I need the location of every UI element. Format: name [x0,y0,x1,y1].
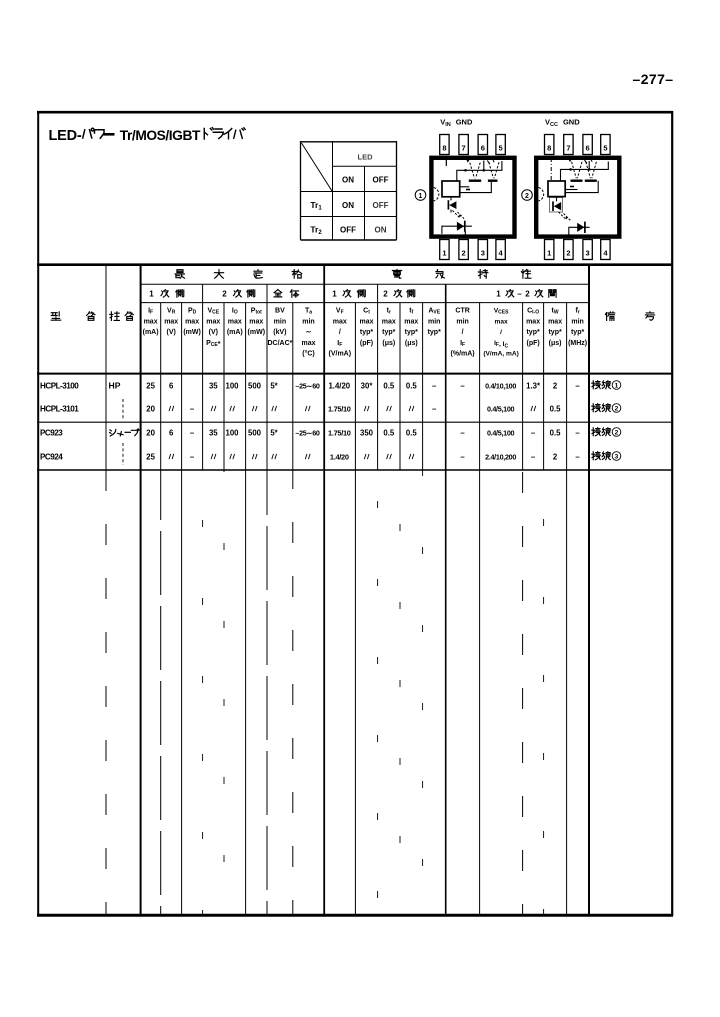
svg-text:2: 2 [525,290,530,299]
svg-text:HCPL-3101: HCPL-3101 [40,405,79,414]
svg-text:(pF): (pF) [526,340,539,347]
svg-text:fr: fr [575,308,579,316]
svg-text:–: – [432,382,437,391]
svg-text:(kV): (kV) [273,329,286,336]
svg-text:20: 20 [146,405,155,414]
svg-text:7: 7 [462,144,466,153]
svg-text:ON: ON [342,176,354,185]
svg-text:VF: VF [336,308,344,316]
svg-text:max: max [144,318,158,325]
svg-text:–: – [460,382,465,391]
svg-text:35: 35 [209,382,218,391]
svg-text:DC/AC*: DC/AC* [267,340,292,347]
svg-text:BV: BV [275,308,285,315]
svg-text:1.4/20: 1.4/20 [328,382,350,391]
svg-text:min: min [428,318,440,325]
svg-text:1: 1 [496,290,501,299]
svg-text:25: 25 [146,382,155,391]
svg-text:(pF): (pF) [360,340,373,347]
svg-text:–: – [190,453,195,462]
svg-text:(μs): (μs) [549,340,562,347]
svg-text:min: min [456,318,468,325]
svg-text:350: 350 [360,429,374,438]
svg-text:(mA): (mA) [143,329,159,336]
svg-text:VCE: VCE [207,308,219,316]
svg-text:–: – [432,405,437,414]
svg-text:1: 1 [419,193,423,200]
svg-text:max: max [228,318,242,325]
svg-text:CI-O: CI-O [527,308,539,316]
svg-text:/: / [462,329,464,336]
svg-text:OFF: OFF [340,226,356,235]
svg-text:20: 20 [146,429,155,438]
svg-text:(mW): (mW) [183,329,201,336]
svg-text:min: min [274,318,286,325]
svg-text:5: 5 [603,144,607,153]
svg-text:∼: ∼ [306,329,312,336]
svg-text:max: max [359,318,373,325]
svg-text:IO: IO [232,308,238,316]
svg-text:tr: tr [387,308,391,316]
svg-text:2: 2 [222,290,227,299]
svg-text:ON: ON [342,201,354,210]
svg-text:min: min [571,318,583,325]
svg-text:VCES: VCES [494,308,509,316]
svg-text:Tr/MOS/IGBT: Tr/MOS/IGBT [120,128,201,143]
svg-text:Ta: Ta [305,308,312,316]
svg-text:max: max [494,318,508,325]
svg-text:PC924: PC924 [40,453,63,462]
svg-text:–: – [460,453,465,462]
svg-text:typ*: typ* [382,329,396,336]
svg-text:typ*: typ* [526,329,540,336]
svg-text:max: max [548,318,562,325]
svg-text:1: 1 [442,249,446,258]
svg-text:2: 2 [566,249,570,258]
svg-text:–277–: –277– [633,71,674,87]
svg-text:max: max [206,318,220,325]
svg-text:typ*: typ* [571,329,585,336]
svg-text:ON: ON [375,226,387,235]
svg-text:max: max [333,318,347,325]
svg-text:0.5: 0.5 [406,382,418,391]
svg-text:500: 500 [248,429,262,438]
svg-text:CTR: CTR [455,308,469,315]
svg-text:typ*: typ* [405,329,419,336]
svg-text:typ*: typ* [360,329,374,336]
svg-text:1.3*: 1.3* [526,382,541,391]
svg-text:PC923: PC923 [40,429,63,438]
svg-text:(°C): (°C) [302,350,315,358]
svg-text:–25∼60: –25∼60 [295,429,320,438]
svg-text:(%/mA): (%/mA) [451,351,475,358]
svg-text:Ptot: Ptot [251,308,262,316]
svg-text:1: 1 [615,383,619,390]
svg-text:3: 3 [615,454,619,461]
svg-text:1.75/10: 1.75/10 [328,429,351,438]
svg-text:AVE: AVE [428,308,440,316]
svg-text:typ*: typ* [428,329,442,336]
svg-text:1: 1 [332,290,337,299]
svg-text:tW: tW [552,308,559,316]
svg-text:IF: IF [460,340,465,348]
svg-text:8: 8 [442,144,446,153]
svg-text:HP: HP [109,381,121,391]
svg-text:1.4/20: 1.4/20 [330,453,349,462]
svg-text:(MHz): (MHz) [568,340,587,347]
svg-text:max: max [164,318,178,325]
svg-text:0.4/10,100: 0.4/10,100 [485,382,516,391]
svg-text:2.4/10,200: 2.4/10,200 [485,453,516,462]
svg-text:6: 6 [169,429,174,438]
svg-text:6: 6 [481,144,485,153]
svg-text:0.4/5,100: 0.4/5,100 [487,405,515,414]
svg-text:3: 3 [586,249,590,258]
svg-text:2: 2 [553,453,558,462]
svg-text:100: 100 [225,429,239,438]
svg-text:2: 2 [462,249,466,258]
svg-text:max: max [301,340,315,347]
svg-text:–: – [190,405,195,414]
svg-text:(μs): (μs) [405,340,418,347]
svg-text:max: max [404,318,418,325]
svg-text:2: 2 [383,290,388,299]
svg-text:5*: 5* [270,429,278,438]
svg-text:1: 1 [547,249,551,258]
svg-text:2: 2 [553,382,558,391]
svg-text:VR: VR [167,308,176,316]
svg-text:7: 7 [566,144,570,153]
svg-text:6: 6 [586,144,590,153]
svg-text:(V/mA, mA): (V/mA, mA) [483,351,519,358]
svg-text:5: 5 [499,144,503,153]
svg-text:–: – [575,453,580,462]
svg-text:(V): (V) [167,329,176,336]
svg-text:max: max [185,318,199,325]
svg-text:–: – [517,290,522,299]
svg-text:max: max [249,318,263,325]
svg-text:6: 6 [169,382,174,391]
svg-text:(μs): (μs) [382,340,395,347]
svg-text:3: 3 [481,249,485,258]
svg-text:OFF: OFF [373,201,389,210]
svg-text:/: / [500,329,502,336]
svg-text:IF: IF [148,308,153,316]
svg-text:LED: LED [358,153,374,162]
svg-text:–: – [575,382,580,391]
svg-text:0.5: 0.5 [383,429,395,438]
svg-text:100: 100 [225,382,239,391]
svg-text:tf: tf [409,308,413,316]
svg-text:–: – [575,429,580,438]
svg-text:typ*: typ* [548,329,562,336]
svg-text:0.5: 0.5 [406,429,418,438]
svg-text:1: 1 [149,290,154,299]
svg-text:0.5: 0.5 [550,405,562,414]
svg-text:–: – [190,429,195,438]
svg-text:HCPL-3100: HCPL-3100 [40,382,79,391]
svg-text:0.4/5,100: 0.4/5,100 [487,429,515,438]
svg-text:max: max [382,318,396,325]
svg-text:(V/mA): (V/mA) [329,351,352,358]
svg-text:35: 35 [209,429,218,438]
svg-text:–: – [531,429,536,438]
svg-text:30*: 30* [361,382,374,391]
svg-text:PCE*: PCE* [206,340,221,348]
svg-text:IF: IF [337,340,342,348]
svg-text:(mW): (mW) [248,329,266,336]
svg-text:OFF: OFF [373,176,389,185]
svg-text:2: 2 [615,430,619,437]
svg-text:–25∼60: –25∼60 [295,382,320,391]
svg-text:2: 2 [525,193,529,200]
svg-text:min: min [302,318,314,325]
svg-text:2: 2 [615,406,619,413]
svg-text:5*: 5* [270,382,278,391]
svg-text:/: / [339,329,341,336]
svg-text:–: – [531,453,536,462]
svg-text:–: – [460,429,465,438]
svg-text:8: 8 [547,144,551,153]
svg-text:(mA): (mA) [227,329,243,336]
svg-text:25: 25 [146,453,155,462]
svg-text:0.5: 0.5 [383,382,395,391]
svg-text:VINGND: VINGND [440,118,473,129]
svg-text:LED-: LED- [49,128,82,144]
svg-text:max: max [526,318,540,325]
svg-text:(V): (V) [209,329,218,336]
svg-text:0.5: 0.5 [550,429,562,438]
svg-text:500: 500 [248,382,262,391]
svg-text:Ct: Ct [363,308,370,316]
svg-text:PD: PD [188,308,197,316]
svg-text:1.75/10: 1.75/10 [328,405,351,414]
